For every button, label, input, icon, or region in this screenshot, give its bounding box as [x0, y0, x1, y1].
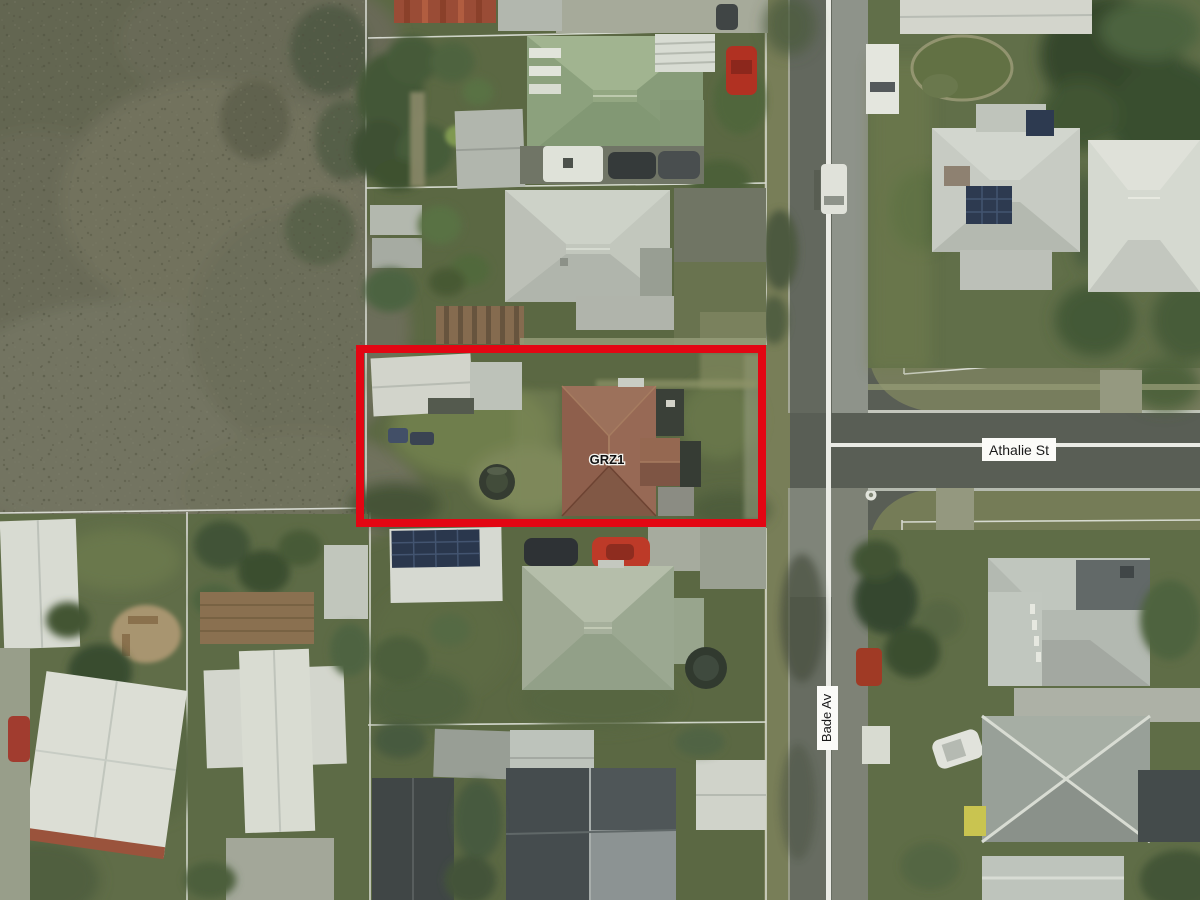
svg-text:Athalie St: Athalie St [989, 442, 1049, 458]
svg-text:Bade Av: Bade Av [819, 693, 834, 742]
svg-text:GRZ1: GRZ1 [590, 452, 625, 467]
